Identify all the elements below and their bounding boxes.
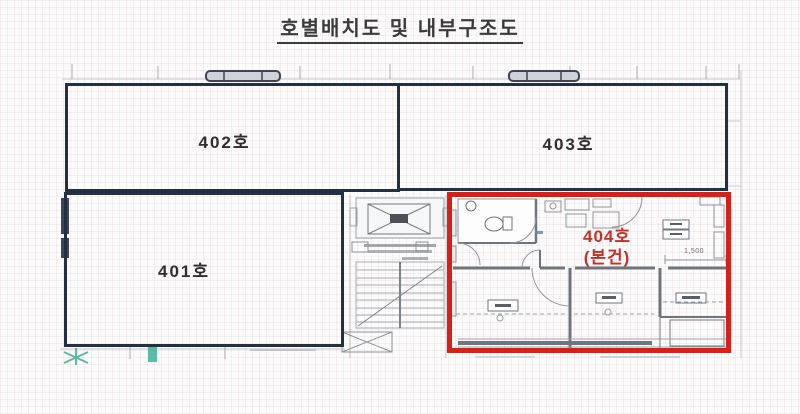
unit-404-number: 404호 (545, 226, 669, 247)
unit-402-region: 402호 (65, 83, 400, 192)
unit-401-label: 401호 (47, 257, 321, 282)
top-reference-ticks (62, 64, 740, 79)
unit-401-region: 401호 (64, 192, 344, 347)
unit-404-region-highlighted (447, 192, 731, 353)
unit-403-region: 403호 (397, 83, 728, 191)
unit-404-subject-tag: (본건) (545, 247, 669, 268)
title-bar: 호별배치도 및 내부구조도 (0, 12, 800, 44)
unit-404-label: 404호 (본건) (545, 226, 669, 268)
floorplan-canvas: 호별배치도 및 내부구조도 402호 403호 401호 404호 (본건) 1… (0, 0, 800, 414)
dimension-label: 1,500 (672, 248, 716, 255)
unit-402-label: 402호 (60, 128, 389, 153)
unit-403-label: 403호 (406, 130, 731, 155)
page-title: 호별배치도 및 내부구조도 (277, 12, 523, 44)
staircase-symbol (342, 262, 444, 352)
